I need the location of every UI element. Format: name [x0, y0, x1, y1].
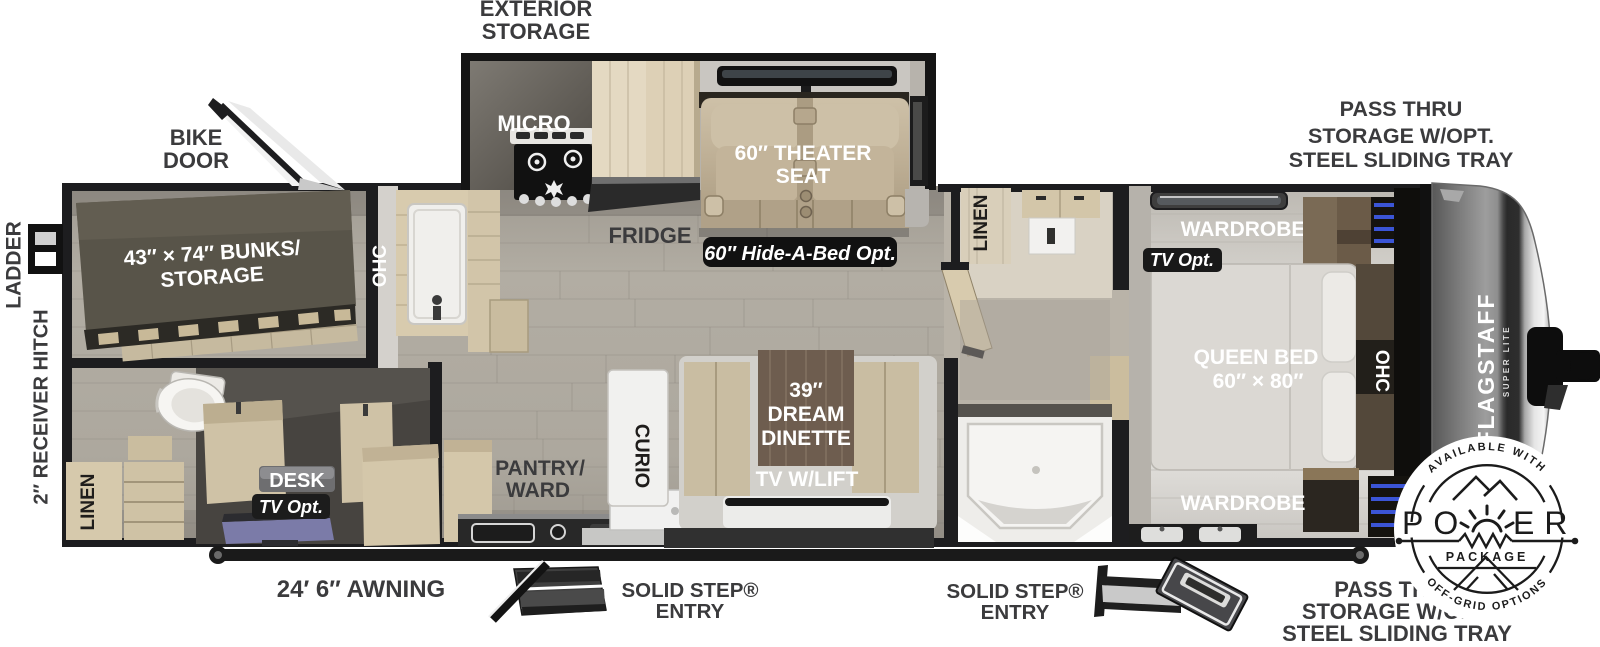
svg-text:DESK: DESK: [269, 470, 325, 492]
svg-text:24′ 6″ AWNING: 24′ 6″ AWNING: [277, 576, 445, 603]
svg-text:BIKE: BIKE: [170, 125, 223, 150]
svg-text:WARD: WARD: [506, 479, 570, 502]
svg-text:TV W/LIFT: TV W/LIFT: [756, 468, 859, 491]
svg-text:CURIO: CURIO: [631, 424, 653, 488]
svg-text:SOLID STEP®: SOLID STEP®: [947, 580, 1084, 603]
svg-text:ENTRY: ENTRY: [981, 601, 1050, 624]
svg-text:LINEN: LINEN: [78, 474, 99, 531]
svg-text:FRIDGE: FRIDGE: [608, 223, 691, 248]
svg-text:60″ Hide-A-Bed Opt.: 60″ Hide-A-Bed Opt.: [704, 243, 896, 265]
svg-text:QUEEN BED: QUEEN BED: [1194, 346, 1319, 369]
svg-text:SOLID STEP®: SOLID STEP®: [622, 579, 759, 602]
svg-text:39″: 39″: [789, 379, 822, 402]
svg-text:OHC: OHC: [370, 245, 391, 288]
svg-text:2″ RECEIVER HITCH: 2″ RECEIVER HITCH: [30, 309, 52, 504]
svg-text:SEAT: SEAT: [776, 165, 831, 188]
svg-text:DOOR: DOOR: [163, 148, 229, 173]
svg-text:SUPER LITE: SUPER LITE: [1502, 325, 1511, 397]
svg-text:DINETTE: DINETTE: [761, 427, 851, 450]
svg-text:WARDROBE: WARDROBE: [1181, 492, 1306, 515]
svg-text:STEEL SLIDING TRAY: STEEL SLIDING TRAY: [1289, 148, 1514, 172]
svg-text:EXTERIOR: EXTERIOR: [480, 0, 593, 21]
svg-text:FLAGSTAFF: FLAGSTAFF: [1473, 293, 1499, 446]
svg-text:60″ × 80″: 60″ × 80″: [1213, 370, 1304, 393]
svg-text:PASS THRU: PASS THRU: [1340, 97, 1463, 121]
svg-text:STORAGE W/OPT.: STORAGE W/OPT.: [1308, 124, 1494, 148]
svg-text:WARDROBE: WARDROBE: [1181, 218, 1306, 241]
svg-text:STEEL SLIDING TRAY: STEEL SLIDING TRAY: [1282, 621, 1512, 646]
svg-text:TV Opt.: TV Opt.: [1150, 250, 1214, 270]
svg-text:PANTRY/: PANTRY/: [495, 457, 585, 480]
svg-text:LADDER: LADDER: [3, 221, 26, 309]
svg-text:STORAGE: STORAGE: [482, 19, 590, 44]
svg-text:DREAM: DREAM: [768, 403, 845, 426]
svg-text:60″ THEATER: 60″ THEATER: [735, 142, 872, 165]
svg-text:ER: ER: [1513, 505, 1577, 541]
svg-text:TV Opt.: TV Opt.: [259, 497, 323, 517]
svg-text:LINEN: LINEN: [971, 195, 992, 252]
svg-text:ENTRY: ENTRY: [656, 600, 725, 623]
svg-text:MICRO: MICRO: [497, 111, 570, 136]
svg-text:OHC: OHC: [1371, 350, 1392, 393]
svg-text:PO: PO: [1402, 505, 1468, 541]
